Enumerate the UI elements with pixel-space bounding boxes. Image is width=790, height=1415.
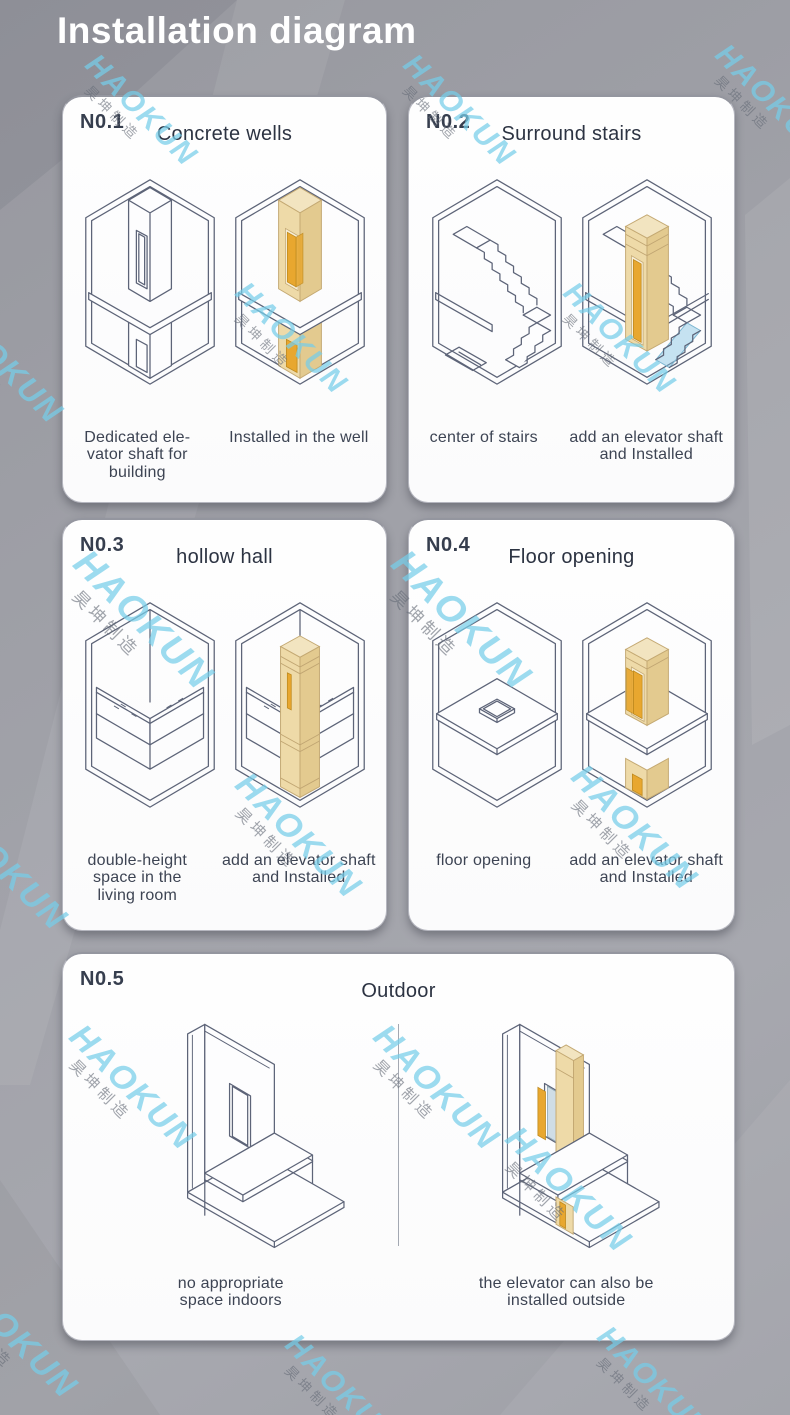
caption-left: no appropriate space indoors <box>63 1275 399 1310</box>
diagram-outdoor-empty <box>98 1011 384 1259</box>
diagram-row <box>409 595 734 848</box>
card-floor-opening: N0.4 Floor opening <box>408 518 735 931</box>
caption-left: floor opening <box>409 852 559 887</box>
caption-row: Dedicated ele- vator shaft for building … <box>63 429 386 481</box>
watermark-haokun: HAOKUN昊坤制造 <box>0 300 68 440</box>
room-outline <box>432 180 560 384</box>
card-hollow-hall: N0.3 hollow hall <box>62 518 387 931</box>
caption-right: add an elevator shaft and Installed <box>559 852 735 887</box>
upper-box-tan <box>625 638 668 726</box>
card-outdoor: N0.5 Outdoor <box>62 952 735 1341</box>
stairs <box>435 226 550 370</box>
diagram-outdoor-installed <box>413 1011 699 1259</box>
caption-right: the elevator can also be installed outsi… <box>399 1275 735 1310</box>
card-surround-stairs: N0.2 Surround stairs <box>408 95 735 503</box>
diagram-row <box>63 595 386 848</box>
elevator-column-tan <box>280 636 319 798</box>
card-number: N0.3 <box>80 534 124 557</box>
diagram-stairs-installed <box>574 172 720 425</box>
building <box>188 1024 344 1247</box>
caption-right: add an elevator shaft and Installed <box>212 852 386 904</box>
lower-box-tan <box>625 758 668 799</box>
diagram-row <box>63 1011 734 1259</box>
diagram-hollow-hall-installed <box>227 595 373 848</box>
diagram-hollow-hall-empty <box>77 595 223 848</box>
caption-left: double-height space in the living room <box>63 852 212 904</box>
caption-row: floor opening add an elevator shaft and … <box>409 852 734 887</box>
diagram-concrete-well-installed <box>227 172 373 425</box>
page: Installation diagram N0.1 Concrete wells <box>0 0 790 1415</box>
caption-left: center of stairs <box>409 429 559 464</box>
diagram-divider <box>398 1024 399 1246</box>
diagram-row <box>63 172 386 425</box>
elevator-box-tan <box>625 215 668 351</box>
card-number: N0.4 <box>426 534 470 557</box>
diagram-row <box>409 172 734 425</box>
caption-row: center of stairs add an elevator shaft a… <box>409 429 734 464</box>
card-number: N0.2 <box>426 111 470 134</box>
caption-row: no appropriate space indoors the elevato… <box>63 1275 734 1310</box>
mid-slab-with-hole <box>436 679 557 755</box>
page-title: Installation diagram <box>57 10 417 52</box>
card-number: N0.5 <box>80 968 124 991</box>
upper-shaft-tan <box>278 188 321 302</box>
diagram-stairs-empty <box>424 172 570 425</box>
card-title: Outdoor <box>63 980 734 1003</box>
caption-right: Installed in the well <box>212 429 386 481</box>
diagram-floor-opening-empty <box>424 595 570 848</box>
diagram-concrete-well-empty <box>77 172 223 425</box>
caption-row: double-height space in the living room a… <box>63 852 386 904</box>
watermark-haokun: HAOKUN昊坤制造 <box>269 1330 401 1415</box>
caption-left: Dedicated ele- vator shaft for building <box>63 429 212 481</box>
upper-shaft <box>128 188 171 302</box>
diagram-floor-opening-installed <box>574 595 720 848</box>
card-number: N0.1 <box>80 111 124 134</box>
caption-right: add an elevator shaft and Installed <box>559 429 735 464</box>
card-concrete-wells: N0.1 Concrete wells <box>62 95 387 503</box>
